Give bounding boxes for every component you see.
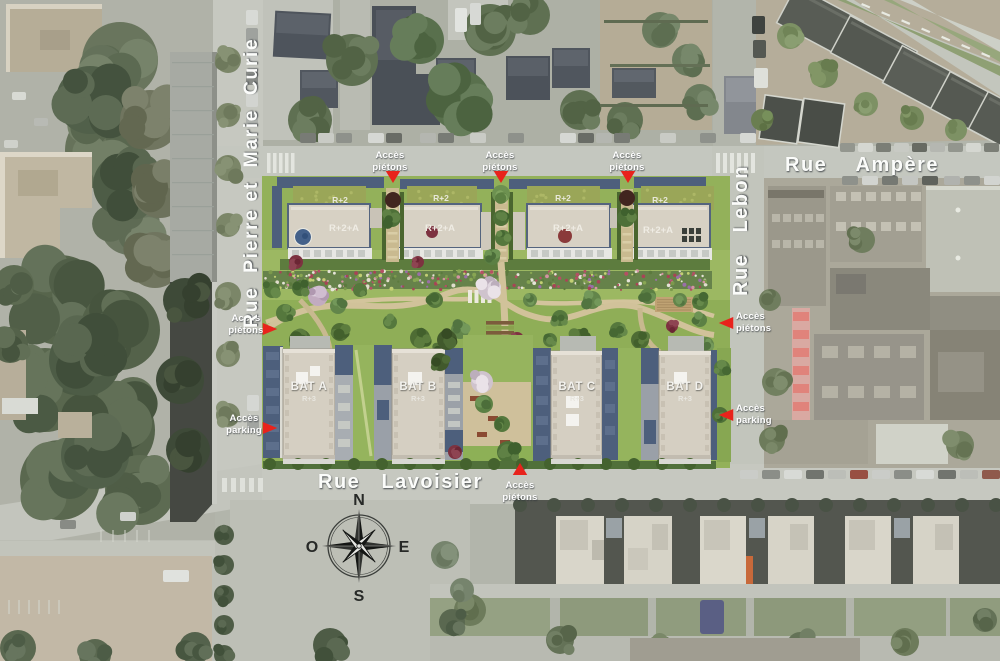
svg-text:piétons: piétons bbox=[736, 323, 771, 334]
svg-text:R+2: R+2 bbox=[652, 195, 668, 205]
svg-text:Rue Ampère: Rue Ampère bbox=[785, 154, 939, 176]
svg-text:Accès: Accès bbox=[230, 413, 259, 424]
svg-text:R+2: R+2 bbox=[433, 193, 449, 203]
svg-text:R+3: R+3 bbox=[411, 394, 425, 403]
svg-text:BAT A: BAT A bbox=[291, 381, 328, 393]
svg-text:Accès: Accès bbox=[613, 150, 642, 161]
svg-text:piétons: piétons bbox=[502, 492, 537, 503]
svg-text:R+2+A: R+2+A bbox=[425, 223, 455, 234]
svg-text:parking: parking bbox=[226, 425, 262, 436]
svg-text:R+2+A: R+2+A bbox=[329, 223, 359, 234]
svg-text:O: O bbox=[306, 539, 318, 556]
svg-text:R+3: R+3 bbox=[302, 394, 316, 403]
svg-text:R+3: R+3 bbox=[678, 394, 692, 403]
svg-text:Accès: Accès bbox=[736, 311, 765, 322]
svg-text:R+2+A: R+2+A bbox=[643, 225, 673, 236]
svg-text:Rue Lebon: Rue Lebon bbox=[730, 165, 752, 296]
svg-text:N: N bbox=[353, 492, 365, 509]
svg-text:R+2: R+2 bbox=[555, 193, 571, 203]
svg-text:BAT C: BAT C bbox=[558, 381, 595, 393]
svg-text:R+2+A: R+2+A bbox=[553, 223, 583, 234]
svg-text:Accès: Accès bbox=[486, 150, 515, 161]
svg-text:R+2: R+2 bbox=[332, 195, 348, 205]
svg-text:Accès: Accès bbox=[376, 150, 405, 161]
svg-text:Rue Lavoisier: Rue Lavoisier bbox=[318, 471, 483, 493]
svg-text:Accès: Accès bbox=[736, 403, 765, 414]
svg-text:R+3: R+3 bbox=[570, 394, 584, 403]
svg-text:BAT B: BAT B bbox=[399, 381, 436, 393]
svg-text:Accès: Accès bbox=[506, 480, 535, 491]
svg-text:Rue Pierre et Marie Curie: Rue Pierre et Marie Curie bbox=[240, 38, 262, 328]
svg-text:parking: parking bbox=[736, 415, 772, 426]
svg-text:E: E bbox=[399, 539, 410, 556]
svg-text:BAT D: BAT D bbox=[666, 381, 703, 393]
svg-text:S: S bbox=[354, 588, 365, 605]
